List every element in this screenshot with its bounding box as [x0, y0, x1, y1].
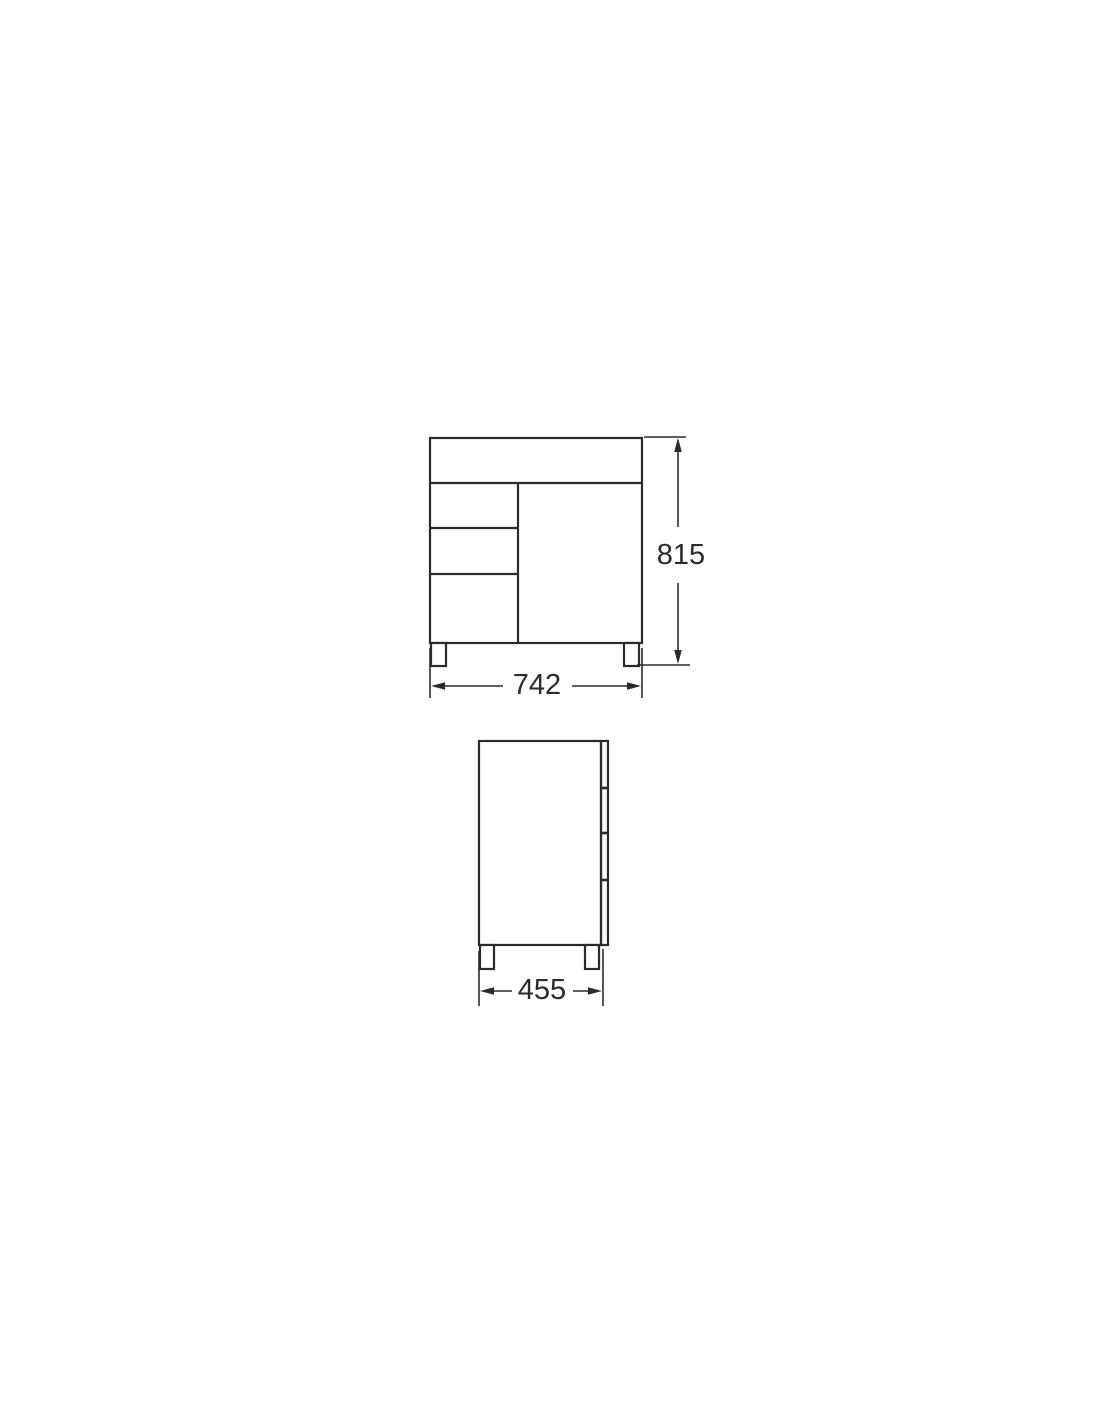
width-dimension: 742 — [430, 648, 642, 701]
cabinet-technical-drawing: 815 742 — [0, 0, 1100, 1422]
drawing-canvas: 815 742 — [0, 0, 1100, 1422]
side-view — [479, 741, 608, 969]
height-dimension: 815 — [637, 437, 705, 665]
height-arrow-up-icon — [674, 438, 682, 452]
width-arrow-right-icon — [627, 682, 641, 690]
front-view — [430, 438, 642, 666]
height-arrow-down-icon — [674, 650, 682, 664]
width-dim-label: 742 — [513, 669, 561, 701]
height-dim-label: 815 — [657, 539, 705, 571]
front-right-foot — [624, 643, 639, 666]
width-arrow-left-icon — [431, 682, 445, 690]
depth-dim-label: 455 — [518, 974, 566, 1006]
front-cabinet-outline — [430, 438, 642, 643]
front-left-foot — [431, 643, 446, 666]
side-right-foot — [585, 945, 599, 969]
depth-arrow-left-icon — [480, 987, 494, 995]
side-left-foot — [480, 945, 494, 969]
side-cabinet-outline — [479, 741, 601, 945]
side-front-panel-strip — [601, 741, 608, 945]
depth-arrow-right-icon — [588, 987, 602, 995]
